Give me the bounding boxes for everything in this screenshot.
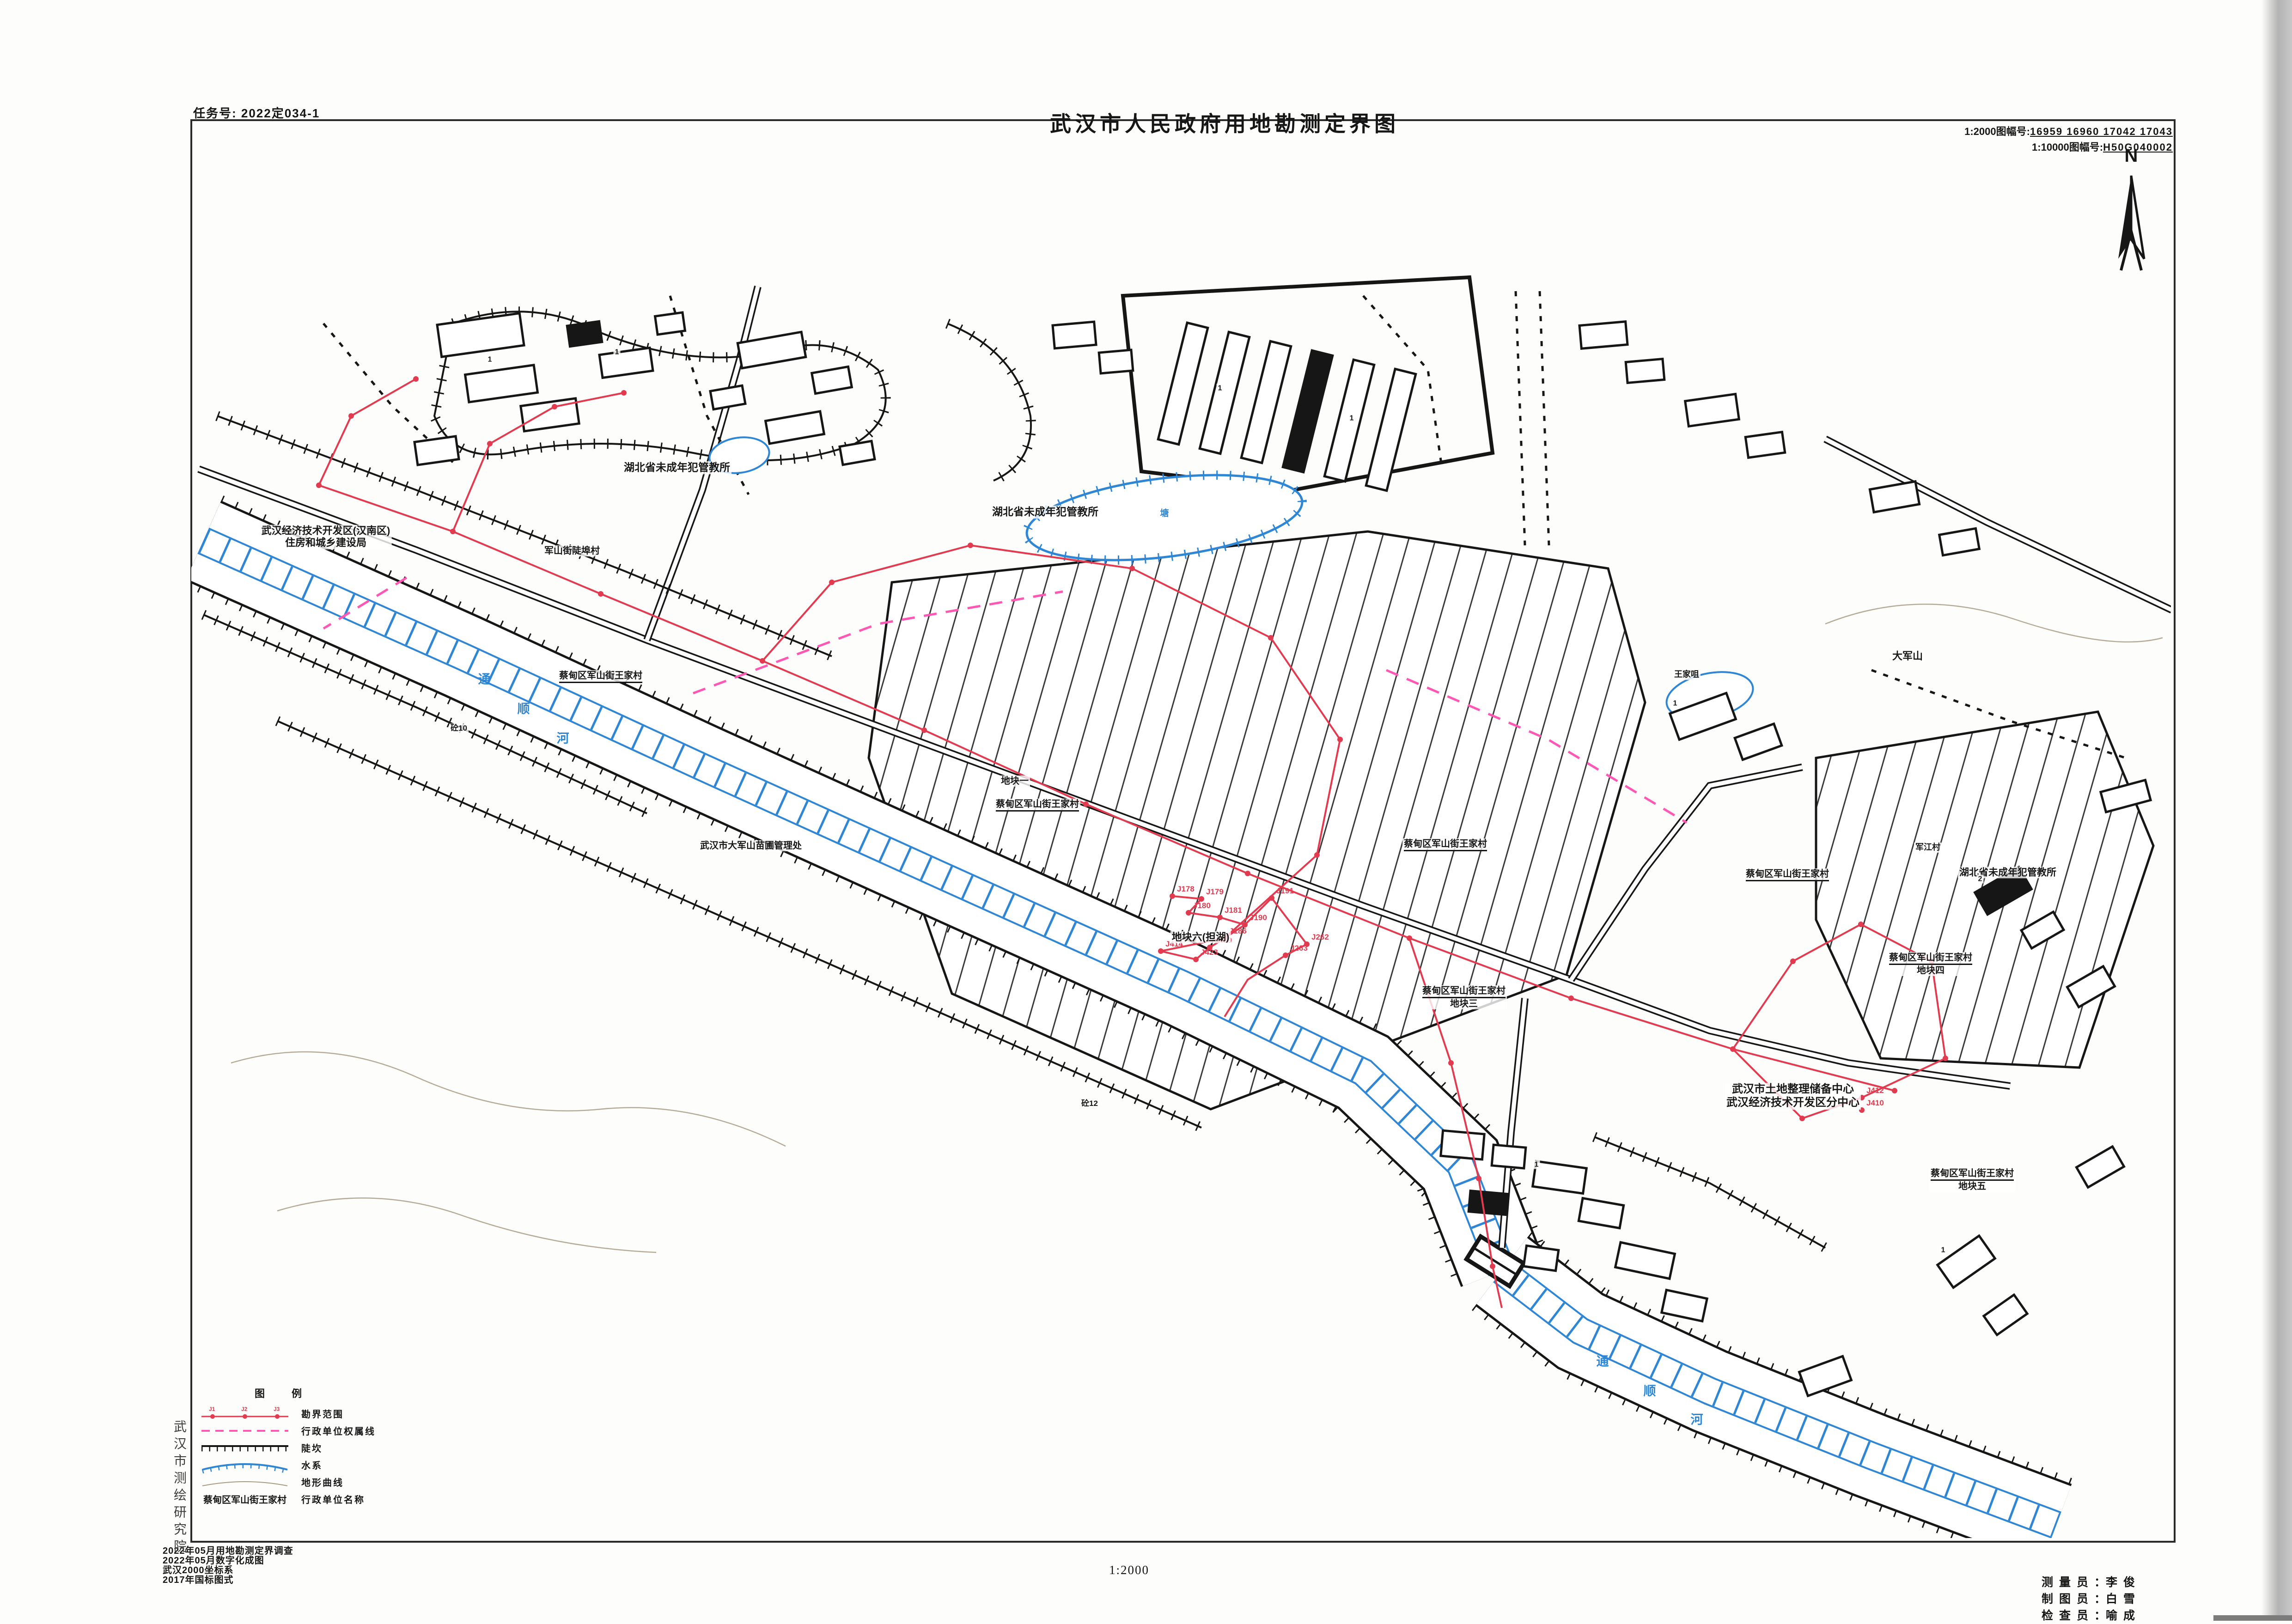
legend-label-boundary: 勘界范围 — [301, 1407, 344, 1420]
field-strips — [869, 531, 2153, 1109]
boundary-point — [1568, 995, 1574, 1001]
boundary-point — [1245, 871, 1250, 876]
map-label: 1 — [1672, 699, 1679, 708]
map-label: 湖北省未成年犯管教所 — [991, 506, 1100, 519]
map-label: 1 — [1348, 414, 1355, 422]
boundary-point — [760, 658, 765, 664]
map-label: 蔡甸区军山街王家村地块四 — [1888, 952, 1974, 976]
map-label: 湖北省未成年犯管教所 — [1958, 867, 2058, 878]
boundary-point — [450, 529, 456, 534]
map-label: 蔡甸区军山街王家村 — [994, 799, 1080, 812]
boundary-point — [1314, 852, 1320, 858]
boundary-point-label: J263 — [1290, 944, 1308, 952]
map-label: 1 — [614, 348, 621, 356]
boundary-point-label: J181 — [1225, 906, 1242, 915]
map-label: 王家咀 — [1673, 670, 1701, 680]
boundary-point-label: J410 — [1866, 1099, 1884, 1107]
scan-edge-band — [2262, 0, 2292, 1621]
legend-row-ownership: 行政单位权属线 — [199, 1422, 531, 1439]
legend-label-scarp: 陡坎 — [301, 1441, 323, 1454]
map-label: 顺 — [516, 702, 531, 716]
map-label: 顺 — [1642, 1384, 1658, 1398]
legend-marker-label: J3 — [274, 1406, 280, 1412]
boundary-point-label: J186 — [1229, 927, 1247, 935]
legend-ownership-sample — [199, 1423, 291, 1439]
boundary-point — [348, 413, 354, 419]
map-label: 蔡甸区军山街王家村 — [1402, 838, 1488, 851]
legend-row-scarp: 陡坎 — [199, 1439, 531, 1456]
legend-row-boundary: J1 J2 J3 勘界范围 — [199, 1405, 531, 1422]
boundary-point — [1476, 1176, 1481, 1181]
svg-text:N: N — [2125, 146, 2138, 166]
map-label: 地块一 — [1000, 775, 1030, 787]
map-label: 1 — [1940, 1245, 1947, 1254]
boundary-point — [621, 390, 627, 396]
scanned-map-sheet: { "header": { "task_no": "任务号: 2022定034-… — [0, 0, 2292, 1621]
map-label: 地块六(担湖) — [1170, 931, 1231, 943]
map-label: 湖北省未成年犯管教所 — [622, 461, 731, 474]
boundary-point — [1407, 935, 1412, 941]
legend-label-water: 水系 — [301, 1458, 323, 1471]
boundary-point — [1858, 922, 1864, 927]
boundary-point — [1790, 959, 1796, 964]
map-label: 武汉市土地整理储备中心武汉经济技术开发区分中心 — [1725, 1083, 1861, 1110]
map-label: 砼10 — [449, 724, 469, 733]
legend-label-admin-name: 行政单位名称 — [301, 1492, 365, 1506]
boundary-point — [1083, 801, 1089, 807]
map-label: 大军山 — [1891, 650, 1924, 662]
legend-title: 图 例 — [199, 1386, 370, 1400]
boundary-point — [1170, 893, 1175, 899]
boundary-point — [1730, 1046, 1736, 1052]
boundary-point — [1217, 915, 1223, 920]
map-label: 1 — [1217, 384, 1224, 392]
boundary-point — [1268, 635, 1274, 641]
boundary-point — [1283, 952, 1288, 958]
boundary-point-label: J178 — [1177, 885, 1195, 893]
boundary-point-label: J191 — [1276, 886, 1294, 895]
boundary-point-label: J412 — [1866, 1086, 1884, 1095]
map-label: 蔡甸区军山街王家村 — [1744, 868, 1830, 881]
legend-water-sample — [199, 1457, 291, 1473]
boundary-point-label: J190 — [1250, 913, 1267, 922]
map-canvas: J178J179J180J181J190J186J191J262J263J414… — [0, 0, 2292, 1621]
boundary-point — [1129, 566, 1135, 571]
boundary-point — [316, 482, 322, 488]
map-label: 军江村 — [1914, 843, 1942, 853]
boundary-point — [968, 543, 973, 548]
map-geometry: J178J179J180J181J190J186J191J262J263J414… — [199, 277, 2172, 1525]
legend-scarp-sample — [199, 1440, 291, 1456]
legend-row-terrain: 地形曲线 — [199, 1473, 531, 1490]
map-label: 通 — [477, 672, 492, 687]
legend-marker-label: J1 — [209, 1406, 215, 1412]
map-label: 河 — [555, 731, 571, 746]
boundary-point — [1269, 895, 1274, 901]
boundary-point — [1490, 1264, 1495, 1269]
map-label: 蔡甸区军山街王家村 — [558, 670, 644, 683]
boundary-point-label: J180 — [1193, 901, 1211, 910]
boundary-point — [1186, 910, 1191, 916]
map-label: 蔡甸区军山街王家村地块三 — [1421, 985, 1507, 1009]
boundary-point — [1158, 948, 1164, 954]
boundary-point — [1193, 957, 1199, 962]
legend: 图 例 J1 J2 J3 勘界范围 行政单位权属线 陡坎 水 — [199, 1386, 531, 1508]
map-label: 塘 — [1158, 509, 1170, 519]
boundary-point — [413, 376, 419, 382]
boundary-point-label: J262 — [1311, 933, 1329, 941]
boundary-point — [921, 727, 927, 733]
boundary-point — [1943, 1056, 1948, 1061]
boundary-point — [1892, 1088, 1897, 1093]
map-label: 1 — [487, 355, 494, 364]
boundary-point — [487, 441, 493, 446]
legend-boundary-sample: J1 J2 J3 — [199, 1405, 291, 1422]
boundary-point — [552, 404, 557, 409]
boundary-point — [598, 591, 603, 597]
map-label: 武汉经济技术开发区(汉南区)住房和城乡建设局 — [260, 525, 392, 549]
map-label: 武汉市大军山苗圃管理处 — [699, 840, 803, 851]
legend-admin-name-sample: 蔡甸区军山街王家村 — [199, 1492, 291, 1506]
map-label: 军山街陡埠村 — [543, 545, 601, 556]
map-label: 砼12 — [1080, 1099, 1099, 1108]
legend-terrain-sample — [199, 1474, 291, 1490]
legend-marker-label: J2 — [241, 1406, 248, 1412]
scan-edge-smudge — [2213, 1615, 2292, 1621]
map-label: 通 — [1595, 1354, 1610, 1369]
map-label: 2 — [1977, 874, 1984, 883]
legend-row-water: 水系 — [199, 1456, 531, 1473]
boundary-point — [1207, 945, 1213, 950]
boundary-point-label: J179 — [1206, 887, 1224, 896]
boundary-point — [1448, 1060, 1454, 1066]
map-label: 蔡甸区军山街王家村地块五 — [1929, 1168, 2015, 1192]
legend-label-ownership: 行政单位权属线 — [301, 1424, 376, 1437]
boundary-point — [1337, 737, 1343, 742]
map-label: 河 — [1689, 1412, 1705, 1427]
legend-label-terrain: 地形曲线 — [301, 1475, 344, 1489]
boundary-point — [1799, 1116, 1805, 1121]
legend-row-admin-name: 蔡甸区军山街王家村 行政单位名称 — [199, 1490, 531, 1508]
boundary-point — [829, 580, 835, 585]
north-arrow: N — [2118, 146, 2144, 270]
map-label: 1 — [1533, 1160, 1540, 1169]
